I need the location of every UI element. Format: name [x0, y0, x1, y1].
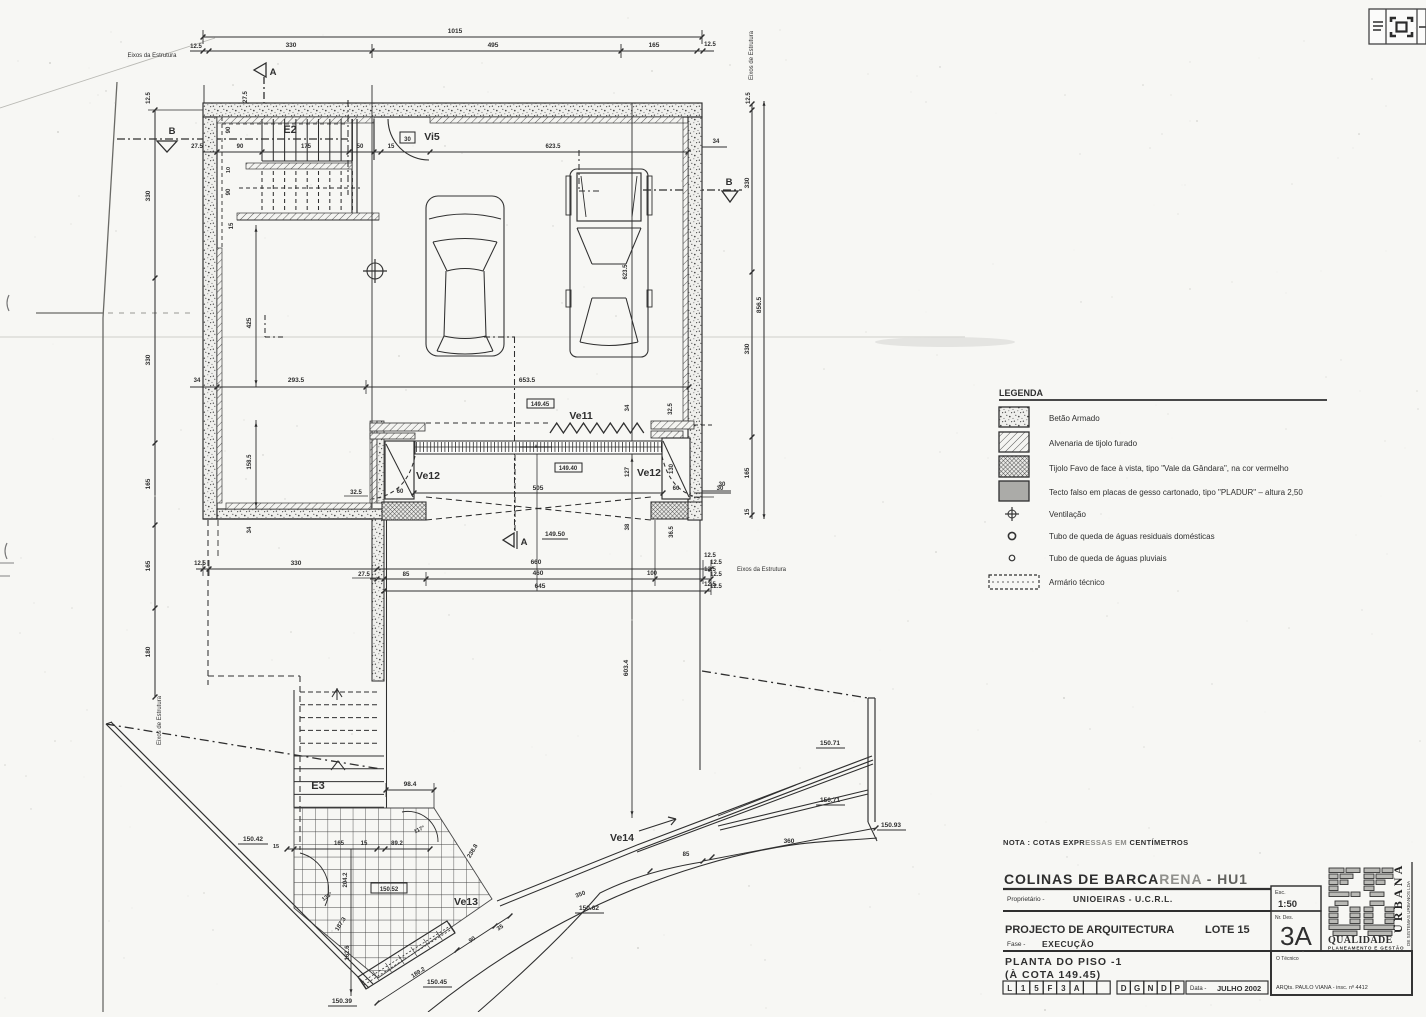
svg-text:Ve13: Ve13 — [454, 896, 478, 908]
svg-text:L: L — [1007, 984, 1012, 993]
svg-text:505: 505 — [533, 485, 544, 492]
svg-text:Tubo de queda de águas pluviai: Tubo de queda de águas pluviais — [1049, 554, 1167, 563]
svg-text:330: 330 — [744, 343, 751, 354]
svg-text:149.45: 149.45 — [531, 402, 550, 408]
svg-text:Proprietário -: Proprietário - — [1007, 896, 1045, 903]
svg-text:34: 34 — [713, 139, 720, 145]
svg-text:O Técnico: O Técnico — [1276, 956, 1299, 962]
svg-text:330: 330 — [145, 190, 152, 201]
svg-text:90: 90 — [226, 188, 232, 195]
svg-text:PLANTA DO PISO -1: PLANTA DO PISO -1 — [1005, 956, 1122, 968]
svg-text:330: 330 — [145, 354, 152, 365]
svg-text:Esc.: Esc. — [1275, 890, 1286, 896]
svg-text:P: P — [1175, 984, 1181, 993]
svg-text:COLINAS DE BARCARENA - HU1: COLINAS DE BARCARENA - HU1 — [1004, 871, 1248, 887]
svg-text:150.71: 150.71 — [820, 797, 840, 804]
svg-text:27.5: 27.5 — [358, 572, 370, 578]
svg-text:645: 645 — [535, 583, 546, 590]
svg-text:36.5: 36.5 — [669, 526, 675, 538]
svg-text:A: A — [1074, 984, 1080, 993]
svg-text:150.39: 150.39 — [332, 998, 352, 1005]
svg-text:165: 165 — [649, 42, 660, 49]
svg-text:330: 330 — [286, 42, 297, 49]
svg-text:12.5: 12.5 — [704, 553, 716, 559]
svg-text:89.2: 89.2 — [391, 841, 403, 847]
svg-text:204.2: 204.2 — [343, 872, 349, 888]
svg-text:Vi5: Vi5 — [424, 131, 440, 143]
svg-text:F: F — [1047, 984, 1052, 993]
svg-text:32.5: 32.5 — [350, 490, 362, 496]
svg-text:653.5: 653.5 — [519, 377, 536, 384]
svg-text:34: 34 — [194, 378, 201, 384]
svg-text:Ventilação: Ventilação — [1049, 510, 1086, 519]
svg-text:LEGENDA: LEGENDA — [999, 388, 1044, 398]
svg-text:3A: 3A — [1280, 921, 1312, 951]
svg-text:12.5: 12.5 — [146, 92, 152, 104]
svg-text:LOTE 15: LOTE 15 — [1205, 924, 1250, 936]
svg-text:Alvenaria de tijolo furado: Alvenaria de tijolo furado — [1049, 439, 1138, 448]
svg-text:A: A — [521, 537, 528, 548]
svg-text:1: 1 — [1021, 984, 1026, 993]
svg-text:15: 15 — [745, 508, 751, 515]
svg-text:150.93: 150.93 — [881, 822, 901, 829]
svg-text:PROJECTO DE ARQUITECTURA: PROJECTO DE ARQUITECTURA — [1005, 924, 1174, 936]
svg-text:JULHO 2002: JULHO 2002 — [1217, 984, 1261, 993]
svg-text:1015: 1015 — [448, 28, 463, 35]
svg-text:15: 15 — [229, 222, 235, 229]
svg-text:UNIOEIRAS - U.C.R.L.: UNIOEIRAS - U.C.R.L. — [1073, 894, 1173, 904]
svg-text:85: 85 — [683, 852, 690, 858]
svg-text:12.5: 12.5 — [710, 584, 722, 590]
svg-text:Ve11: Ve11 — [569, 410, 593, 422]
svg-text:30: 30 — [404, 137, 411, 143]
svg-text:34: 34 — [625, 404, 631, 411]
svg-text:175: 175 — [301, 144, 312, 150]
svg-text:360: 360 — [784, 838, 795, 845]
svg-text:162.6: 162.6 — [345, 945, 351, 961]
svg-text:15: 15 — [388, 144, 395, 150]
svg-text:ARQts. PAULO VIANA - insc. nº: ARQts. PAULO VIANA - insc. nº 4412 — [1276, 984, 1368, 991]
svg-text:150.42: 150.42 — [243, 836, 263, 843]
svg-text:5: 5 — [1034, 984, 1039, 993]
svg-text:293.5: 293.5 — [288, 377, 305, 384]
svg-text:27.5: 27.5 — [243, 91, 249, 103]
svg-text:E2: E2 — [283, 124, 296, 136]
svg-text:12.5: 12.5 — [194, 561, 206, 567]
svg-text:N: N — [1148, 984, 1154, 993]
svg-text:(À COTA 149.45): (À COTA 149.45) — [1005, 968, 1101, 981]
svg-text:85: 85 — [403, 572, 410, 578]
svg-text:EXECUÇÃO: EXECUÇÃO — [1042, 939, 1094, 949]
svg-text:165: 165 — [334, 841, 345, 847]
svg-text:PLANEAMENTO E GESTÃO: PLANEAMENTO E GESTÃO — [1328, 945, 1404, 951]
svg-text:Eixos da Estrutura: Eixos da Estrutura — [737, 567, 787, 573]
svg-text:425: 425 — [246, 317, 253, 328]
svg-text:60: 60 — [397, 489, 404, 495]
svg-text:34: 34 — [247, 526, 253, 533]
svg-text:Eixos de Estrutura: Eixos de Estrutura — [749, 30, 755, 80]
svg-text:330: 330 — [291, 560, 302, 567]
svg-text:165: 165 — [744, 467, 751, 478]
svg-text:D: D — [1161, 984, 1167, 993]
svg-text:Betão Armado: Betão Armado — [1049, 414, 1100, 423]
svg-text:URBANA: URBANA — [1391, 862, 1405, 933]
svg-text:G: G — [1134, 984, 1140, 993]
svg-text:180: 180 — [145, 646, 152, 657]
svg-text:DE SISTEMAS URBANOS LDA: DE SISTEMAS URBANOS LDA — [1406, 880, 1411, 946]
svg-text:12.5: 12.5 — [704, 42, 716, 48]
svg-text:1:50: 1:50 — [1278, 899, 1297, 910]
svg-text:12.5: 12.5 — [710, 560, 722, 566]
svg-text:98.4: 98.4 — [404, 781, 417, 788]
svg-text:90: 90 — [226, 126, 232, 133]
svg-text:Tubo de queda de águas residua: Tubo de queda de águas residuais domésti… — [1049, 532, 1215, 541]
svg-text:Tecto falso em placas de gesso: Tecto falso em placas de gesso cartonado… — [1049, 488, 1303, 497]
svg-text:QUALIDADE: QUALIDADE — [1328, 935, 1393, 946]
svg-text:90: 90 — [237, 144, 244, 150]
svg-text:50: 50 — [357, 144, 364, 150]
svg-text:460: 460 — [533, 570, 544, 577]
svg-text:12.5: 12.5 — [746, 92, 752, 104]
svg-text:158.5: 158.5 — [247, 454, 253, 470]
svg-text:Ve14: Ve14 — [610, 832, 634, 844]
svg-text:165: 165 — [145, 560, 152, 571]
svg-text:150.62: 150.62 — [579, 905, 599, 912]
svg-text:12.5: 12.5 — [710, 572, 722, 578]
svg-text:12.5: 12.5 — [190, 44, 202, 50]
svg-text:15: 15 — [361, 841, 368, 847]
svg-text:NOTA : COTAS EXPRESSAS EM CENT: NOTA : COTAS EXPRESSAS EM CENTÍMETROS — [1003, 838, 1189, 847]
svg-text:E3: E3 — [311, 780, 324, 792]
svg-text:Eixos da Estrutura: Eixos da Estrutura — [127, 53, 177, 59]
svg-text:Armário técnico: Armário técnico — [1049, 578, 1105, 587]
svg-text:495: 495 — [488, 42, 499, 49]
svg-text:149.40: 149.40 — [559, 466, 578, 472]
svg-text:150.52: 150.52 — [380, 887, 399, 893]
svg-text:Tijolo Favo de face à vista, t: Tijolo Favo de face à vista, tipo "Vale … — [1049, 464, 1289, 473]
svg-text:27.5: 27.5 — [191, 144, 203, 150]
svg-text:38: 38 — [625, 523, 631, 530]
svg-text:149.50: 149.50 — [545, 531, 565, 538]
svg-text:127: 127 — [625, 466, 631, 477]
svg-text:10: 10 — [226, 167, 232, 173]
svg-text:Ve12: Ve12 — [637, 467, 661, 479]
svg-text:B: B — [726, 177, 733, 188]
svg-text:Fase -: Fase - — [1007, 941, 1025, 948]
svg-text:150.71: 150.71 — [820, 740, 840, 747]
svg-text:15: 15 — [273, 844, 279, 850]
svg-text:D: D — [1121, 984, 1127, 993]
svg-text:3: 3 — [1061, 984, 1066, 993]
svg-text:A: A — [270, 67, 277, 78]
svg-text:856.5: 856.5 — [756, 296, 763, 313]
svg-text:30: 30 — [717, 486, 724, 492]
svg-text:603.4: 603.4 — [623, 659, 630, 676]
svg-text:623.5: 623.5 — [545, 144, 561, 150]
svg-text:330: 330 — [744, 177, 751, 188]
svg-text:Data -: Data - — [1190, 986, 1206, 992]
svg-text:60: 60 — [673, 486, 680, 492]
svg-text:Ve12: Ve12 — [416, 470, 440, 482]
svg-text:150.45: 150.45 — [427, 979, 447, 986]
svg-text:623.5: 623.5 — [623, 264, 629, 280]
svg-text:100: 100 — [647, 571, 658, 577]
svg-text:660: 660 — [531, 559, 542, 566]
svg-text:130: 130 — [669, 463, 675, 474]
svg-text:32.5: 32.5 — [668, 403, 674, 415]
svg-text:B: B — [169, 126, 176, 137]
svg-text:Eixos de Estrutura: Eixos de Estrutura — [157, 695, 163, 745]
